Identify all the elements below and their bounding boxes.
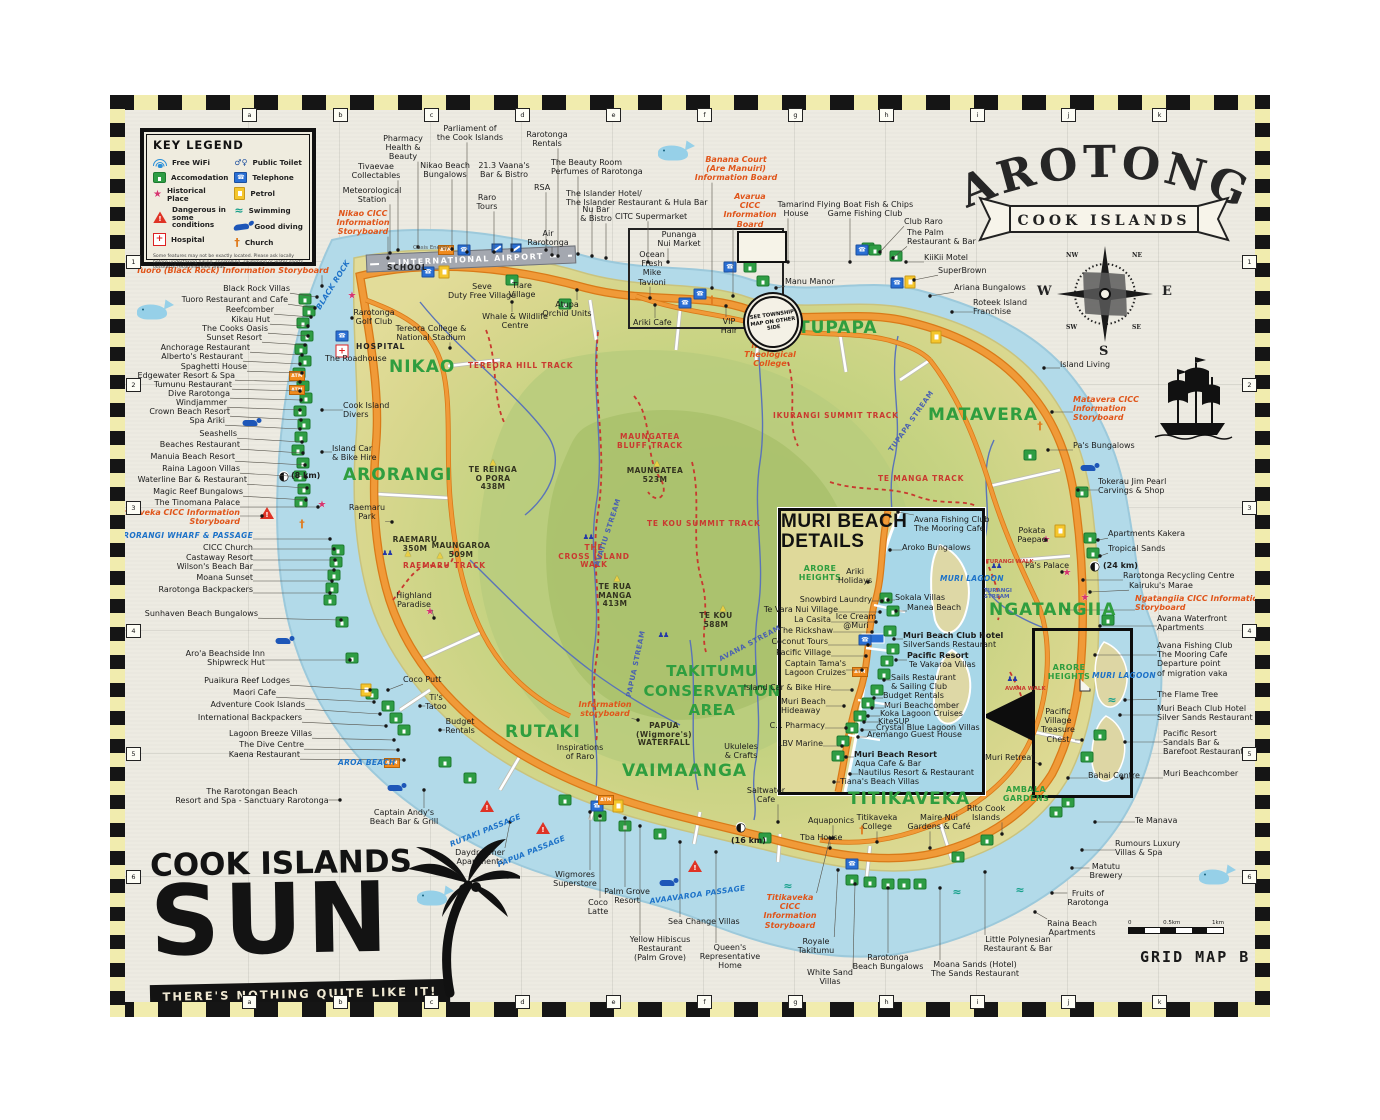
legend-item: Free WiFi (153, 157, 228, 168)
grid-col-label: c (424, 108, 439, 122)
map-label: Pacific Resort Sandals Bar & Barefoot Re… (1163, 729, 1244, 757)
map-label: Saltwater Cafe (747, 786, 785, 804)
map-label: MATAVERA (928, 406, 1038, 426)
checker-frame-top (110, 95, 1270, 110)
map-label: Muri Beach Club Hotel (903, 631, 1003, 640)
map-label: Reefcomber (226, 305, 274, 314)
map-label: Dive Rarotonga (168, 389, 230, 398)
map-label: Moana Sands (Hotel) The Sands Restaurant (931, 960, 1019, 978)
map-label: Tamarind House (778, 200, 815, 218)
map-label: TE KOU 588M (699, 612, 732, 629)
map-label: TE REINGA O PORA 438M (469, 466, 517, 492)
map-label: Meteorological Station (343, 186, 402, 204)
grid-col-label: b (333, 108, 348, 122)
map-label: Aro'a Beachside Inn Shipwreck Hut (186, 649, 265, 667)
map-label: Tiare Village (509, 281, 536, 299)
house-icon (864, 877, 877, 888)
map-label: Maire Nui Gardens & Café (907, 813, 970, 831)
house-icon (464, 773, 477, 784)
dive-icon (243, 420, 258, 426)
map-label: Ngatangiia CICC Information Storyboard (1135, 594, 1264, 612)
map-label: Island Living (1060, 360, 1110, 369)
map-label: Pacific Village Treasure Chest (1041, 707, 1075, 744)
map-label: VAIMAANGA (622, 762, 747, 782)
map-label: Nikao Beach Bungalows (420, 161, 470, 179)
house-icon (328, 570, 341, 581)
map-label: Sea Change Villas (668, 917, 740, 926)
house-icon (654, 829, 667, 840)
map-label: Manu Manor (785, 277, 835, 286)
grid-row-label: 4 (126, 624, 141, 638)
map-label: ARORE HEIGHTS (1048, 663, 1090, 681)
scale-end: 1km (1212, 920, 1224, 926)
map-label: Ocean Fresh Mike Tavioni (638, 250, 666, 287)
map-label: Kairuku's Marae (1129, 581, 1193, 590)
map-label: NGATANGIIA (989, 601, 1116, 621)
map-label: Oasis Energy (413, 245, 449, 251)
wifi-icon (153, 157, 167, 168)
petrol-icon (361, 684, 372, 697)
legend-item-label: Public Toilet (252, 159, 301, 167)
map-label: Sokala Villas (895, 593, 945, 602)
map-label: Captain Tama's Lagoon Cruizes (785, 659, 846, 677)
map-label: Raemaru Park (349, 503, 385, 521)
scale-mid: 0.5km (1163, 920, 1180, 926)
map-label: SCHOOL (387, 264, 428, 273)
map-label: Tiana's Beach Villas (840, 777, 919, 786)
map-label: Crown Beach Resort (149, 407, 230, 416)
house-icon (869, 245, 882, 256)
house-icon (846, 875, 859, 886)
map-label: Muri Beach Hideaway (781, 697, 826, 715)
map-label: Aquaponics (808, 816, 854, 825)
map-label: KiiKii Motel (924, 253, 968, 262)
map-label: Waterline Bar & Restaurant (138, 475, 247, 484)
map-label: Anchorage Restaurant (161, 343, 250, 352)
grid-col-label: e (606, 108, 621, 122)
church-icon: † (1037, 420, 1043, 433)
map-label: Palm Grove Resort (604, 887, 650, 905)
map-label: Adventure Cook Islands (211, 700, 305, 709)
phone-icon: ☎ (336, 331, 349, 342)
house-icon (1050, 807, 1063, 818)
legend-item: Accomodation (153, 172, 228, 183)
phone-icon: ☎ (846, 859, 859, 870)
hiker-icon: ♟♟ (382, 549, 393, 557)
map-label: The Beauty Room Perfumes of Rarotonga (551, 158, 643, 176)
legend-item: Petrol (234, 187, 305, 200)
map-label: Parliament of the Cook Islands (437, 124, 503, 142)
map-label: IKURANGI SUMMIT TRACK (773, 412, 899, 421)
map-label: Little Polynesian Restaurant & Bar (984, 935, 1053, 953)
map-label: Sails Restaurant & Sailing Club (891, 673, 956, 691)
map-label: International Backpackers (198, 713, 302, 722)
map-label: RAEMARU TRACK (403, 562, 486, 571)
map-label: The Rickshaw (778, 626, 833, 635)
grid-col-label: d (515, 995, 530, 1009)
map-label: Sunhaven Beach Bungalows (145, 609, 258, 618)
map-label: Pharmacy Health & Beauty (383, 134, 423, 162)
diving-icon (234, 222, 251, 230)
map-label: TE RUA MANGA 413M (598, 583, 632, 609)
map-label: Puaikura Reef Lodges (204, 676, 290, 685)
grid-row-label: 5 (126, 747, 141, 761)
grid-col-label: e (606, 995, 621, 1009)
map-label: Banana Court (Are Manuiri) Information B… (695, 155, 778, 183)
grid-col-label: a (242, 995, 257, 1009)
map-label: TE MANGA TRACK (878, 475, 964, 484)
star-icon: ★ (348, 291, 357, 302)
hiker-icon: ♟♟ (583, 533, 594, 541)
map-label: TEREORA HILL TRACK (468, 362, 573, 371)
map-label: Yellow Hibiscus Restaurant (Palm Grove) (630, 935, 691, 963)
map-label: SuperBrown (938, 266, 987, 275)
atm-icon: ATM (289, 371, 305, 381)
map-label: MAUNGAROA 509M (432, 542, 491, 559)
church-icon: † (234, 236, 240, 249)
legend-item: +Hospital (153, 233, 228, 246)
map-label: Rito Cook Islands (967, 804, 1005, 822)
map-label: VIP Hair (721, 317, 737, 335)
danger-icon: ! (153, 211, 167, 223)
map-label: Lagoon Breeze Villas (229, 729, 312, 738)
grid-col-label: i (970, 108, 985, 122)
legend-item: !Dangerous in some conditions (153, 206, 228, 229)
legend-item: †Church (234, 236, 305, 249)
map-label: Titikaveka College (857, 813, 898, 831)
map-label: Magic Reef Bungalows (153, 487, 243, 496)
map-label: The Dive Centre (239, 740, 304, 749)
phone-icon: ☎ (458, 245, 471, 256)
dive-icon (1081, 465, 1096, 471)
house-icon (297, 458, 310, 469)
map-label: Avana Fishing Club The Mooring Cafe (914, 515, 990, 533)
map-label: Pokata Paepae (1017, 526, 1046, 544)
paradise-inn-box (737, 231, 787, 263)
map-label: TUPAPA (798, 319, 878, 339)
map-label: Cook Island Divers (343, 401, 389, 419)
flag-icon (511, 244, 522, 253)
legend-item-label: Accomodation (171, 174, 228, 182)
map-label: Muri Beachcomber (1163, 769, 1238, 778)
map-label: LBV Marine (778, 739, 823, 748)
map-label: Snowbird Laundry (800, 595, 872, 604)
map-label: Moana Sunset (196, 573, 253, 582)
atm-icon: ATM (598, 795, 614, 805)
map-label: TURANGI STREAM (984, 588, 1012, 601)
map-label: The Flame Tree (1157, 690, 1218, 699)
house-icon (301, 331, 314, 342)
map-label: MAUNGATEA 523M (627, 467, 683, 484)
map-label: Rumours Luxury Villas & Spa (1115, 839, 1180, 857)
house-icon (336, 617, 349, 628)
map-label: Seashells (199, 429, 237, 438)
whale-icon (1199, 870, 1229, 885)
grid-row-label: 3 (1242, 501, 1257, 515)
map-label: Windjammer (176, 398, 227, 407)
map-label: Matavera CICC Information Storyboard (1073, 395, 1139, 423)
map-label: Rarotonga Golf Club (353, 308, 394, 326)
map-label: Te Manava (1135, 816, 1177, 825)
map-label: Ice Cream @Muri (836, 612, 877, 630)
map-label: La Casita (794, 615, 831, 624)
legend-item-label: Dangerous in some conditions (172, 206, 228, 229)
house-icon (390, 713, 403, 724)
grid-col-label: a (242, 108, 257, 122)
map-label: Wigmores Superstore (553, 870, 597, 888)
grid-col-label: j (1061, 108, 1076, 122)
checker-frame-bottom (110, 1002, 1270, 1017)
telephone-icon: ☎ (234, 172, 247, 183)
phone-icon: ☎ (856, 245, 869, 256)
map-label: PAPUA (Wigmore's) WATERFALL (636, 722, 692, 748)
grid-row-label: 4 (1242, 624, 1257, 638)
map-label: Muri Beach Resort (854, 750, 937, 759)
house-icon (890, 251, 903, 262)
map-label: Muri Beach Club Hotel Silver Sands Resta… (1157, 704, 1253, 722)
map-key-legend: KEY LEGEND Free WiFiAccomodation★Histori… (140, 128, 316, 266)
map-label: THE CROSS ISLAND WALK (558, 544, 630, 570)
house-icon (292, 445, 305, 456)
map-label: AVANA WALK (1005, 686, 1046, 692)
flag-icon (492, 244, 503, 253)
legend-item-label: Church (245, 239, 273, 247)
map-label: Captain Andy's Beach Bar & Grill (370, 808, 438, 826)
grid-col-label: j (1061, 995, 1076, 1009)
map-label: Kaena Restaurant (229, 750, 300, 759)
house-icon (299, 356, 312, 367)
map-label: RSA (534, 183, 550, 192)
map-label: Wilson's Beach Bar (177, 562, 253, 571)
swim-icon: ≈ (952, 886, 961, 899)
map-label: Coconut Tours (771, 637, 828, 646)
map-label: Black Rock Villas (223, 284, 290, 293)
map-label: NIKAO (389, 358, 455, 378)
map-label: (24 km) (1103, 561, 1138, 570)
map-label: Tereora College & National Stadium (396, 324, 467, 342)
map-label: TE KOU SUMMIT TRACK (647, 520, 761, 529)
grid-col-label: f (697, 108, 712, 122)
star-icon: ★ (318, 500, 327, 511)
house-icon (882, 879, 895, 890)
map-label: Coco Putt (403, 675, 441, 684)
swim-icon: ≈ (1015, 884, 1024, 897)
phone-icon: ☎ (891, 278, 904, 289)
map-label: (8 km) (291, 471, 320, 480)
map-label: The Roadhouse (325, 354, 387, 363)
house-icon (914, 879, 927, 890)
swim-icon: ≈ (783, 880, 792, 893)
whale-icon (658, 146, 688, 161)
map-label: Apartments Kakera (1108, 529, 1185, 538)
legend-item: ♂♀Public Toilet (234, 157, 305, 168)
grid-row-label: 3 (126, 501, 141, 515)
house-icon (332, 545, 345, 556)
map-label: Tokerau Jim Pearl Carvings & Shop (1098, 477, 1166, 495)
map-label: Inspirations of Raro (557, 743, 604, 761)
map-label: Castaway Resort (186, 553, 253, 562)
legend-item: ≈Swimming (234, 204, 305, 217)
house-icon (439, 757, 452, 768)
legend-item-label: Good diving (254, 223, 302, 231)
map-label: Rarotonga Backpackers (159, 585, 253, 594)
house-icon (1076, 487, 1089, 498)
hiker-icon: ♟♟ (658, 631, 669, 639)
legend-title: KEY LEGEND (153, 138, 305, 152)
grid-col-label: h (879, 108, 894, 122)
legend-item-label: Free WiFi (172, 159, 210, 167)
map-label: Rarotonga Rentals (526, 130, 567, 148)
legend-item-label: Petrol (250, 190, 275, 198)
grid-col-label: g (788, 995, 803, 1009)
dive-icon (388, 785, 403, 791)
map-label: Island Car & Bike Hire (744, 683, 831, 692)
km-icon: ◐ (736, 822, 746, 832)
map-label: AROA BEACH (338, 759, 396, 768)
dive-icon (660, 880, 675, 886)
petrol-icon (905, 276, 916, 289)
house-icon (1084, 533, 1097, 544)
house-icon (324, 595, 337, 606)
checker-frame-left (110, 95, 125, 1017)
map-label: Te Vara Nui Village (764, 605, 838, 614)
grid-map-label: GRID MAP B (1140, 948, 1250, 966)
map-label: Raina Beach Apartments (1047, 919, 1097, 937)
map-label: The Palm Restaurant & Bar (907, 228, 976, 246)
map-label: MURI LAGOON (1092, 672, 1156, 681)
map-label: Atupa Orchid Units (542, 300, 591, 318)
house-icon (382, 701, 395, 712)
petrol-icon (613, 800, 624, 813)
public-toilet-icon: ♂♀ (234, 158, 247, 167)
map-label: Tropical Sands (1108, 544, 1165, 553)
house-icon (295, 344, 308, 355)
scale-bar: 0 0.5km 1km (1128, 920, 1224, 934)
grid-row-label: 5 (1242, 747, 1257, 761)
map-label: Edgewater Resort & Spa (138, 371, 235, 380)
legend-item-label: Hospital (171, 236, 205, 244)
house-icon (303, 306, 316, 317)
map-label: Nautilus Resort & Restaurant (858, 768, 974, 777)
map-label: Pacific Resort (907, 651, 969, 660)
legend-item-label: Telephone (252, 174, 293, 182)
map-label: Pacific Village (776, 648, 831, 657)
km-icon: ◐ (279, 471, 289, 481)
map-label: Sunset Resort (206, 333, 262, 342)
map-label: ARORE HEIGHTS (799, 564, 841, 582)
map-label: (16 km) (731, 836, 766, 845)
map-label: HOSPITAL (356, 343, 405, 352)
map-label: Ariana Bungalows (954, 283, 1026, 292)
ship-illustration (1155, 357, 1232, 439)
house-icon (295, 497, 308, 508)
map-label: Raina Lagoon Villas (162, 464, 240, 473)
rarotonga-tourist-map: aabbccddeeffgghhiijjkk112233445566 RAROT… (0, 0, 1380, 1120)
km-icon: ◐ (1090, 561, 1100, 571)
grid-col-label: k (1152, 995, 1167, 1009)
map-label: Punanga Nui Market (657, 230, 700, 248)
map-label: Manuia Beach Resort (150, 452, 235, 461)
legend-footnote: Some features may not be exactly located… (153, 254, 305, 271)
map-label: Spa Ariki (190, 416, 225, 425)
house-icon (298, 419, 311, 430)
grid-col-label: f (697, 995, 712, 1009)
petrol-icon (931, 331, 942, 344)
map-label: Avarua CICC Information Board (723, 192, 776, 229)
map-label: Beaches Restaurant (160, 440, 240, 449)
map-label: RAEMARU 350M (393, 536, 438, 553)
grid-row-label: 1 (126, 255, 141, 269)
house-icon (298, 484, 311, 495)
house-icon (346, 653, 359, 664)
house-icon (952, 852, 965, 863)
map-label: Budget Rentals (883, 691, 944, 700)
map-label: White Sand Villas (807, 968, 853, 986)
compass-rose: N S E W NW NE SW SE (1040, 232, 1170, 357)
house-icon (559, 795, 572, 806)
map-label: Tba House (800, 833, 842, 842)
grid-row-label: 2 (126, 378, 141, 392)
map-label: Maori Cafe (233, 688, 276, 697)
map-label: Tivaevae Collectables (352, 162, 401, 180)
petrol-icon (1055, 525, 1066, 538)
map-label: Rarotonga Beach Bungalows (853, 953, 924, 971)
map-label: Tumunu Restaurant (154, 380, 232, 389)
grid-row-label: 6 (1242, 870, 1257, 884)
grid-col-label: k (1152, 108, 1167, 122)
map-label: Nu Bar & Bistro (580, 205, 612, 223)
grid-col-label: g (788, 108, 803, 122)
swimming-icon: ≈ (234, 204, 243, 217)
hiker-icon: ♟♟ (1007, 675, 1018, 683)
grid-row-label: 2 (1242, 378, 1257, 392)
legend-item: ★Historical Place (153, 187, 228, 202)
map-label: MURI BEACH DETAILS (781, 512, 907, 552)
map-label: Aremango Guest House (867, 730, 962, 739)
house-icon (295, 432, 308, 443)
map-label: MURI LAGOON (940, 575, 1004, 584)
map-label: Royale Takitumu (798, 937, 834, 955)
map-label: C.I. Pharmacy (770, 721, 825, 730)
map-label: Tuoro Restaurant and Cafe (182, 295, 288, 304)
map-label: MAUNGATEA BLUFF TRACK (617, 433, 683, 450)
house-icon (326, 583, 339, 594)
house-icon (898, 879, 911, 890)
house-icon (398, 725, 411, 736)
map-label: Te Vakaroa Villas (909, 660, 976, 669)
legend-item-label: Swimming (249, 207, 291, 215)
map-label: ARORANGI WHARF & PASSAGE (117, 532, 253, 541)
grid-row-label: 6 (126, 870, 141, 884)
house-icon (981, 835, 994, 846)
grid-col-label: i (970, 995, 985, 1009)
legend-item: ☎Telephone (234, 172, 305, 183)
house-icon (294, 406, 307, 417)
house-icon (297, 318, 310, 329)
map-label: Fruits of Rarotonga (1067, 889, 1108, 907)
map-label: SilverSands Restaurant (903, 640, 996, 649)
map-label: The Cooks Oasis (202, 324, 268, 333)
historical-place-icon: ★ (153, 189, 162, 200)
grid-col-label: h (879, 995, 894, 1009)
cook-islands-sun-logo: COOK ISLANDS SUN THERE'S NOTHING QUITE L… (150, 845, 480, 1010)
map-label: Information storyboard (578, 700, 631, 718)
map-label: ARORANGI (343, 466, 452, 486)
petrol-icon (234, 187, 245, 200)
house-icon (1087, 548, 1100, 559)
map-label: Bahai Centre (1088, 771, 1140, 780)
map-label: TURANGI WALK (986, 559, 1034, 565)
